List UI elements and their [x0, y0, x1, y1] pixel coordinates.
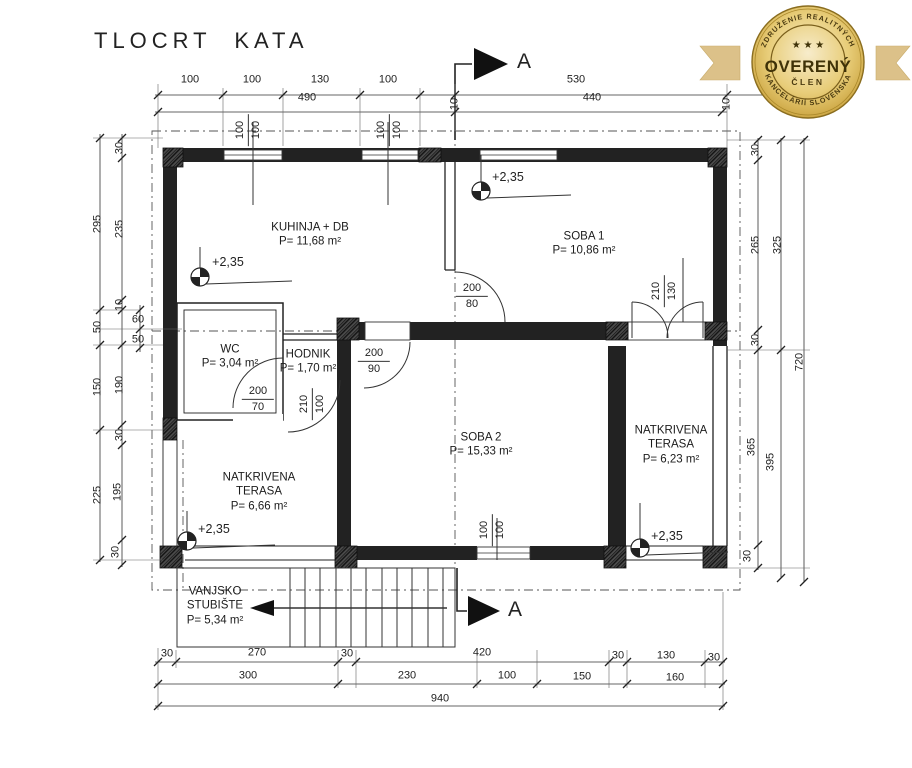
verified-member-badge: ZDRUŽENIE REALITNÝCH KANCELÁRIÍ SLOVENSK… [698, 0, 912, 130]
column-hatching [160, 148, 727, 568]
section-marker-bottom [457, 568, 500, 626]
stair-direction-arrow [250, 600, 274, 616]
badge-main-text: OVERENÝ [765, 57, 852, 76]
walls [163, 148, 727, 568]
door-swings [233, 122, 703, 560]
badge-stars: ★ ★ ★ [792, 40, 824, 51]
section-arrow-icon [468, 596, 500, 626]
section-arrow-icon [474, 48, 508, 80]
section-marker-top [455, 48, 508, 140]
section-label-a-top: A [517, 50, 531, 74]
axis-lines [152, 131, 740, 590]
dimension-lines [93, 84, 810, 710]
section-label-a-bottom: A [508, 598, 522, 622]
drawing-title: TLOCRT KATA [94, 28, 309, 54]
stairs [177, 568, 455, 647]
badge-sub-text: ČLEN [791, 76, 824, 87]
elevation-point-icon [178, 511, 275, 550]
elevation-markers [178, 155, 728, 557]
elevation-point-icon [191, 247, 292, 286]
